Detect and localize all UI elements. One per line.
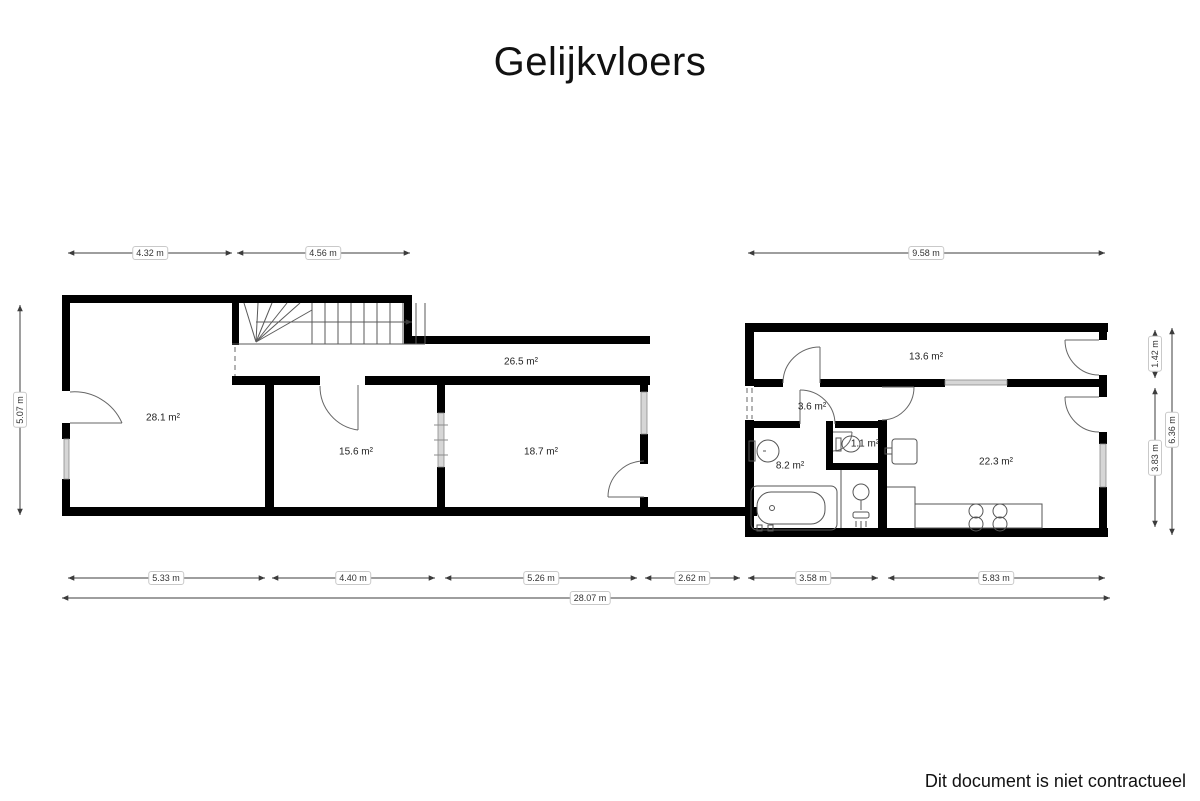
- dimension-label: 3.83 m: [1148, 440, 1162, 476]
- room-area-label: 28.1 m²: [146, 413, 180, 424]
- floorplan-page: Gelijkvloers: [0, 0, 1200, 801]
- dimension-label: 9.58 m: [908, 246, 944, 260]
- room-area-label: 8.2 m²: [776, 461, 804, 472]
- dimension-label: 2.62 m: [674, 571, 710, 585]
- dimension-label: 5.26 m: [523, 571, 559, 585]
- dimension-label: 5.33 m: [148, 571, 184, 585]
- room-area-label: 13.6 m²: [909, 352, 943, 363]
- dimension-label: 4.56 m: [305, 246, 341, 260]
- room-area-label: 22.3 m²: [979, 457, 1013, 468]
- doors: [70, 340, 1099, 497]
- dimension-label: 4.32 m: [132, 246, 168, 260]
- fridge-icon: [885, 439, 917, 464]
- dimension-label: 5.07 m: [13, 392, 27, 428]
- room-area-label: 26.5 m²: [504, 357, 538, 368]
- shower-icon: [841, 470, 869, 528]
- dimension-label: 5.83 m: [978, 571, 1014, 585]
- dimension-label: 4.40 m: [335, 571, 371, 585]
- staircase: [232, 303, 425, 344]
- dimension-label: 28.07 m: [570, 591, 611, 605]
- bathtub-icon: [751, 486, 837, 531]
- disclaimer-text: Dit document is niet contractueel: [925, 771, 1186, 792]
- room-area-label: 15.6 m²: [339, 447, 373, 458]
- dimension-label: 1.42 m: [1148, 336, 1162, 372]
- windows: [64, 380, 1106, 487]
- walls: [62, 295, 1108, 537]
- fixtures: [749, 436, 1042, 531]
- room-area-label: 18.7 m²: [524, 447, 558, 458]
- dimension-lines: [20, 253, 1172, 598]
- kitchen-counter-icon: [887, 487, 1042, 531]
- room-area-label: 3.6 m²: [798, 402, 826, 413]
- dimension-label: 6.36 m: [1165, 412, 1179, 448]
- floorplan-drawing: [0, 0, 1200, 801]
- dimension-label: 3.58 m: [795, 571, 831, 585]
- room-area-label: 1.1 m²: [851, 439, 879, 450]
